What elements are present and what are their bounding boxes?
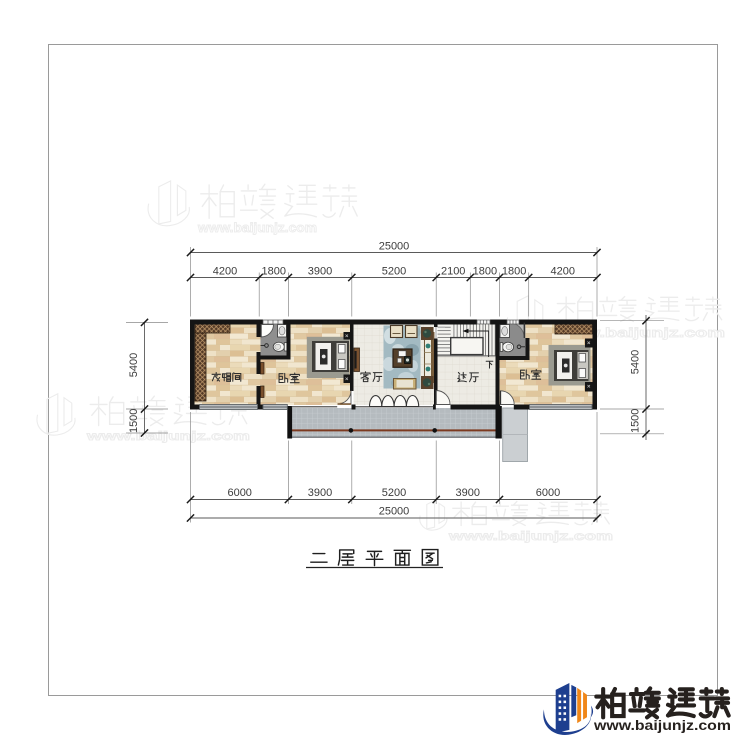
svg-text:3900: 3900 [308,266,332,278]
svg-text:5200: 5200 [382,266,406,278]
svg-text:6000: 6000 [536,487,560,499]
svg-text:25000: 25000 [379,506,410,518]
svg-text:www.baijunjz.com: www.baijunjz.com [197,220,317,235]
svg-text:3900: 3900 [308,487,332,499]
svg-text:1500: 1500 [128,409,140,433]
svg-text:4200: 4200 [213,266,237,278]
svg-text:www.baijunjz.com: www.baijunjz.com [85,429,250,443]
svg-text:5200: 5200 [382,487,406,499]
svg-text:1500: 1500 [630,409,642,433]
svg-text:5400: 5400 [630,350,642,374]
svg-text:1800: 1800 [262,266,286,278]
svg-text:www.baijunjz.com: www.baijunjz.com [593,717,731,733]
svg-text:6000: 6000 [227,487,251,499]
svg-text:2100: 2100 [441,266,465,278]
svg-text:5400: 5400 [128,353,140,377]
svg-text:25000: 25000 [379,241,410,253]
svg-text:4200: 4200 [551,266,575,278]
svg-text:www.baijunjz.com: www.baijunjz.com [447,529,613,543]
svg-text:1800: 1800 [502,266,526,278]
svg-text:1800: 1800 [473,266,497,278]
svg-text:3900: 3900 [456,487,480,499]
